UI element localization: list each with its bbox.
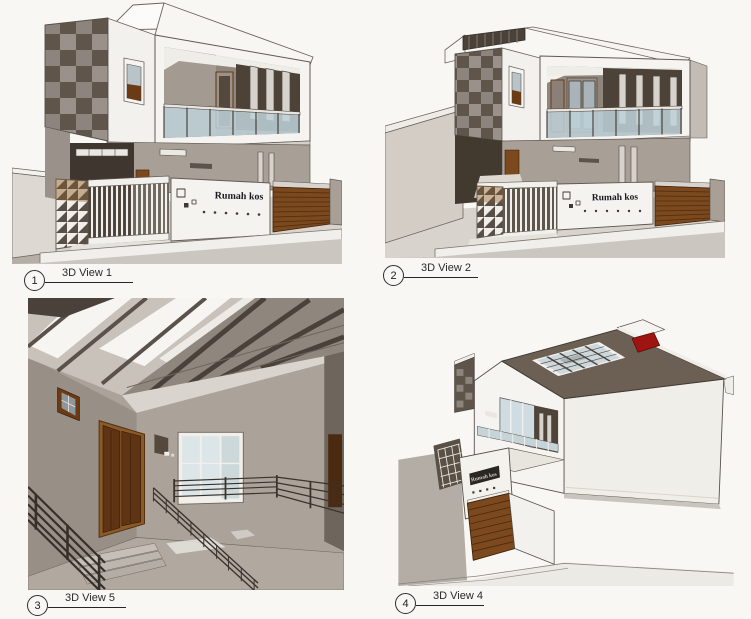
center-window (178, 432, 243, 504)
viewport-3d-view-1[interactable]: Rumah kos (12, 2, 342, 264)
checker-facade (45, 18, 108, 141)
gate-diagonal-panel (477, 186, 503, 238)
view-title-1: 3D View 1 (62, 267, 133, 282)
view1-render: Rumah kos (12, 3, 342, 264)
view-number-bubble-4: 4 (395, 593, 416, 614)
view4-render: Rumah kos (398, 320, 733, 586)
sign-text: Rumah kos (215, 190, 264, 202)
view-number-bubble-2: 2 (383, 265, 404, 286)
fence-sign-wall: Rumah kos (171, 178, 270, 241)
label-underline-4 (416, 605, 484, 606)
checker-facade (455, 48, 502, 141)
upper-floor-box (540, 56, 707, 148)
drawing-sheet: Rumah kos (0, 0, 751, 619)
viewport-3d-view-5[interactable] (28, 298, 344, 590)
view-title-3: 3D View 5 (65, 592, 126, 607)
gate-diagonal-panel (56, 179, 88, 249)
view5-render (28, 298, 344, 590)
sign-text: Rumah kos (592, 193, 639, 204)
neighbor-wall (385, 104, 463, 243)
label-underline-1 (45, 282, 133, 283)
small-window (509, 66, 524, 108)
view2-render: Rumah kos (385, 27, 725, 258)
wood-fence (273, 181, 330, 232)
view-number-bubble-3: 3 (27, 595, 48, 616)
viewport-3d-view-4[interactable]: Rumah kos (398, 300, 734, 586)
right-corridor (324, 352, 344, 552)
label-underline-2 (404, 277, 478, 278)
wood-gate (467, 490, 514, 560)
view-title-2: 3D View 2 (421, 262, 478, 277)
view-title-4: 3D View 4 (433, 590, 484, 605)
glass-balustrade (547, 106, 682, 138)
small-window (124, 58, 144, 105)
label-3d-view-4: 4 3D View 4 (395, 590, 484, 614)
view-number-bubble-1: 1 (24, 270, 45, 291)
fence-sign-wall: Rumah kos (557, 182, 653, 230)
label-underline-3 (48, 607, 126, 608)
viewport-3d-view-2[interactable]: Rumah kos (385, 8, 725, 258)
label-3d-view-5: 3 3D View 5 (27, 592, 126, 616)
wood-fence (655, 181, 710, 226)
wood-double-doors (99, 421, 144, 538)
label-3d-view-1: 1 3D View 1 (24, 267, 133, 291)
checker-facade-top (455, 353, 475, 412)
label-3d-view-2: 2 3D View 2 (383, 262, 478, 286)
sliding-gate (88, 176, 169, 245)
